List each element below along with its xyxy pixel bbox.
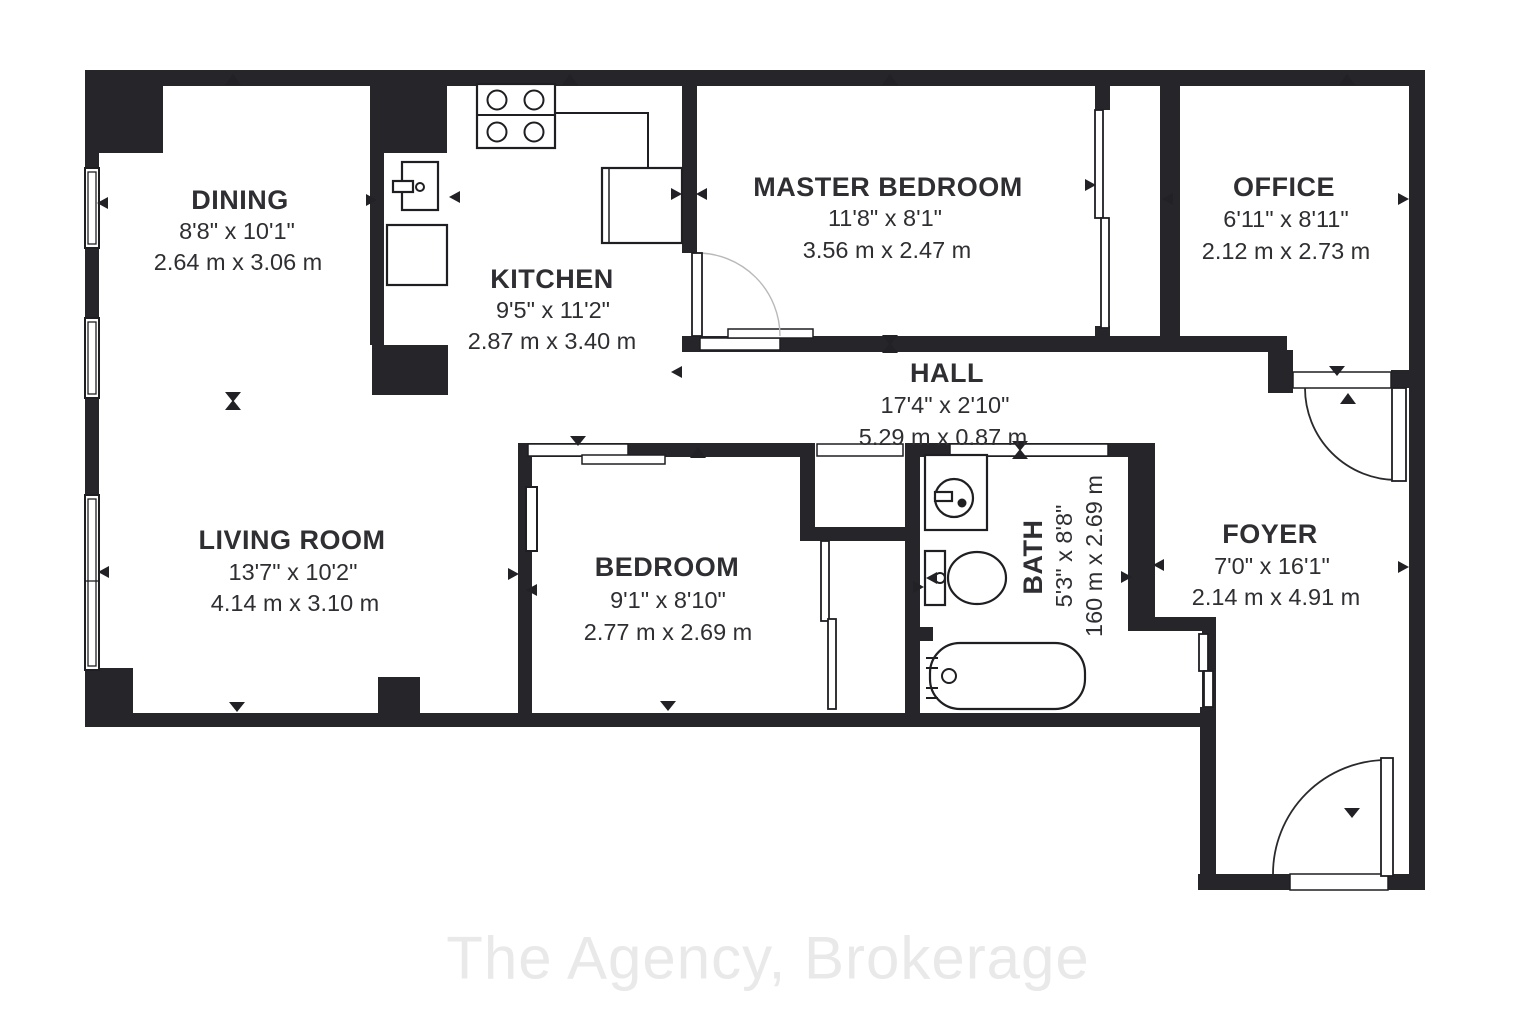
master-bedroom-metric: 3.56 m x 2.47 m xyxy=(803,237,972,263)
hall-imperial: 17'4" x 2'10" xyxy=(881,392,1010,418)
hall-label: HALL xyxy=(910,358,984,388)
living-room-imperial: 13'7" x 10'2" xyxy=(229,559,358,585)
living-room-label: LIVING ROOM xyxy=(199,525,386,555)
master-bedroom-label: MASTER BEDROOM xyxy=(753,172,1023,202)
bedroom-closet-sliding-doors xyxy=(821,541,836,709)
cabinet-icon xyxy=(387,225,447,285)
fridge-icon xyxy=(602,168,682,243)
stove-icon xyxy=(477,84,555,148)
master-bedroom-imperial: 11'8" x 8'1" xyxy=(828,205,942,231)
kitchen-imperial: 9'5" x 11'2" xyxy=(496,297,610,323)
bathtub-icon xyxy=(926,643,1085,709)
master-bedroom-door xyxy=(692,253,780,336)
foyer-imperial: 7'0" x 16'1" xyxy=(1214,553,1330,579)
living-room-window xyxy=(85,495,99,670)
dining-metric: 2.64 m x 3.06 m xyxy=(154,249,323,275)
foyer-metric: 2.14 m x 4.91 m xyxy=(1192,584,1361,610)
dining-window-2 xyxy=(85,318,99,398)
bedroom-imperial: 9'1" x 8'10" xyxy=(610,587,726,613)
foyer-label: FOYER xyxy=(1222,519,1318,549)
dining-label: DINING xyxy=(191,185,289,215)
kitchen-label: KITCHEN xyxy=(490,264,614,294)
bedroom-metric: 2.77 m x 2.69 m xyxy=(584,619,753,645)
kitchen-metric: 2.87 m x 3.40 m xyxy=(468,328,637,354)
counter-edge xyxy=(555,113,648,168)
office-metric: 2.12 m x 2.73 m xyxy=(1202,238,1371,264)
bedroom-pocket-door xyxy=(526,487,537,551)
dining-window-1 xyxy=(85,168,99,248)
floorplan-drawing: DINING 8'8" x 10'1" 2.64 m x 3.06 m KITC… xyxy=(0,0,1536,1024)
bath-metric: 160 m x 2.69 m xyxy=(1081,475,1107,637)
toilet-icon xyxy=(925,551,1006,605)
sink-icon xyxy=(925,455,987,530)
bedroom-label: BEDROOM xyxy=(595,552,740,582)
office-label: OFFICE xyxy=(1233,172,1335,202)
dishwasher-icon xyxy=(393,162,438,210)
foyer-exterior-door xyxy=(1273,758,1393,876)
floorplan-page: DINING 8'8" x 10'1" 2.64 m x 3.06 m KITC… xyxy=(0,0,1536,1024)
hall-metric: 5.29 m x 0.87 m xyxy=(859,424,1028,450)
living-room-metric: 4.14 m x 3.10 m xyxy=(211,590,380,616)
master-closet-sliding-doors xyxy=(1095,110,1109,328)
dining-imperial: 8'8" x 10'1" xyxy=(179,218,295,244)
brokerage-watermark: The Agency, Brokerage xyxy=(446,925,1090,992)
entry-door xyxy=(1305,388,1406,481)
office-imperial: 6'11" x 8'11" xyxy=(1223,206,1348,232)
room-labels: DINING 8'8" x 10'1" 2.64 m x 3.06 m KITC… xyxy=(154,172,1371,645)
bath-imperial: 5'3" x 8'8" xyxy=(1051,505,1077,608)
bath-label: BATH xyxy=(1018,520,1048,595)
